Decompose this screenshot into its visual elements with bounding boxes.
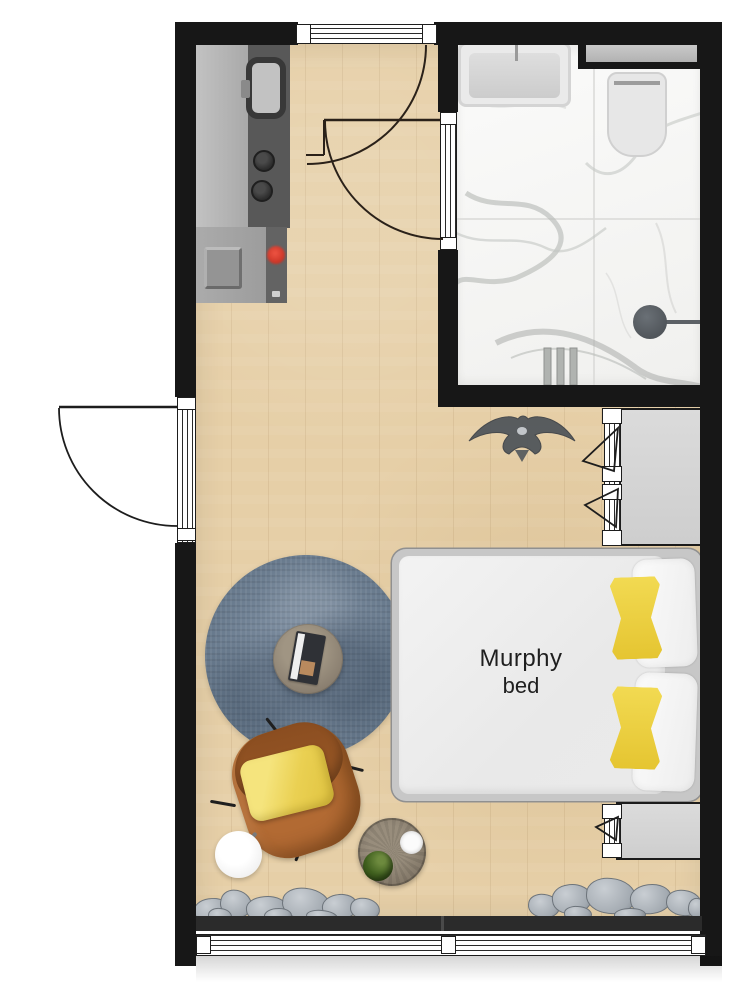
window-bottom-mullion [441,936,456,954]
wall-right [700,22,722,966]
bench-hinge [602,843,622,858]
shower-arm [664,320,702,324]
window-top-cap [296,24,311,44]
cooktop-burner [251,180,273,202]
entry-door-cap [177,528,196,541]
wall-bathroom-lower [438,250,458,407]
appliance-handle [272,291,280,297]
window-bottom-cap [691,936,706,954]
floor-plan: Murphy bed [0,0,747,1000]
wardrobe-hinge [602,530,622,546]
wardrobe-hinge [602,466,622,482]
decorative-stones-right [528,874,704,922]
window-top [296,24,437,44]
floor-drain [544,348,577,385]
wall-bottom-sill [196,916,702,931]
kitchen-appliance [204,247,242,289]
sink-faucet [241,80,250,98]
window-top-cap [422,24,437,44]
window-bottom-cap [196,936,211,954]
shower-head [633,305,667,339]
wall-niche [586,45,697,62]
entry-door-cap [177,397,196,410]
bathroom-door-cap [440,237,457,250]
toilet [607,72,667,157]
magazine-photo [299,660,315,676]
bench-hinge [602,804,622,819]
bathroom-door-cap [440,112,457,125]
wall-bathroom-bottom [438,385,702,407]
wardrobe [616,408,702,546]
cooktop-burner [253,150,275,172]
wall-left-lower [175,543,196,966]
storage-bench [616,802,702,860]
wardrobe-hinge [602,408,622,424]
wall-left-upper [175,22,196,397]
bathroom-door-jamb [440,112,457,250]
toilet-cistern-line [614,81,660,85]
wall-bathroom-upper [438,43,458,112]
entry-door-jamb [177,397,196,543]
wardrobe-hinge [602,484,622,500]
bathtub-faucet [515,45,518,61]
floor-lamp [215,831,262,878]
kitchen-counter [196,45,250,228]
potted-plant [363,851,393,881]
entry-door-swing [59,407,178,526]
sill-seam [441,916,444,931]
stove-indicator [267,246,285,264]
bowl [400,831,423,854]
bathtub [458,42,571,107]
kitchen-sink [246,57,286,119]
exterior-shadow [196,956,722,982]
